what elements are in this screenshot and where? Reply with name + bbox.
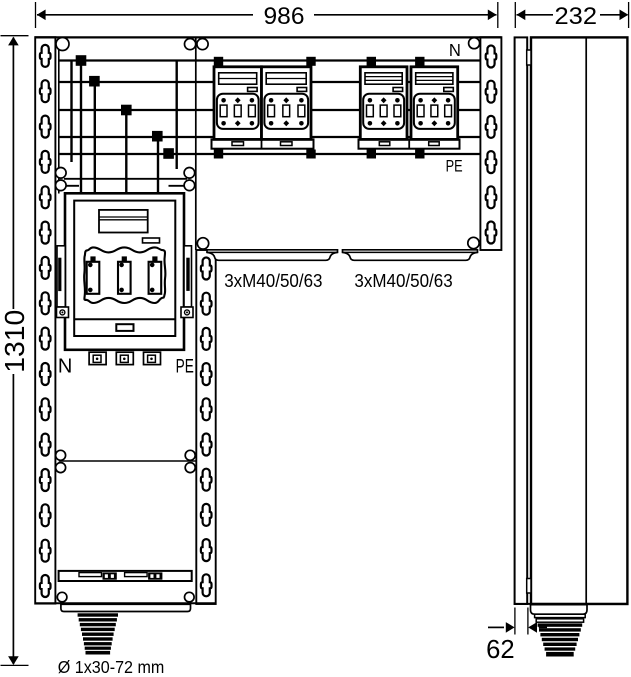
svg-text:3xM40/50/63: 3xM40/50/63 [224,271,322,291]
svg-text:1310: 1310 [0,310,30,373]
svg-text:PE: PE [176,355,194,377]
svg-text:PE: PE [446,158,463,176]
svg-text:N: N [449,40,461,60]
svg-text:Ø 1x30-72 mm: Ø 1x30-72 mm [58,657,165,677]
svg-text:N: N [58,355,72,377]
svg-text:62: 62 [486,634,514,664]
svg-text:232: 232 [555,3,598,30]
svg-text:986: 986 [264,3,305,30]
svg-text:3xM40/50/63: 3xM40/50/63 [354,271,452,291]
